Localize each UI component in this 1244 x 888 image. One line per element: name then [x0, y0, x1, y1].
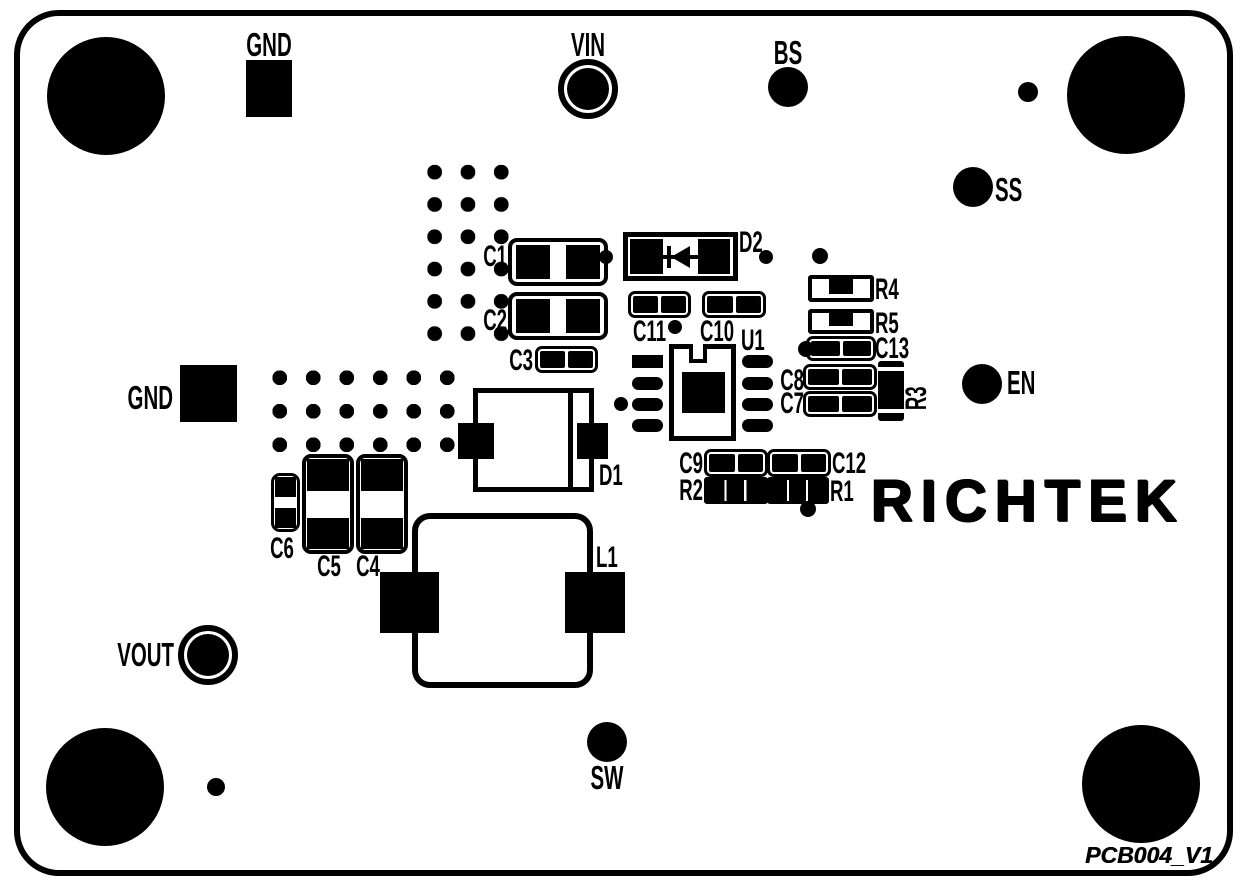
via-dot: [812, 248, 828, 264]
component-r4: [808, 275, 874, 302]
vout-pad-center: [187, 634, 229, 676]
r1-label: R1: [830, 477, 854, 507]
component-c12: [767, 449, 831, 477]
u1-label: U1: [741, 326, 765, 356]
pcb-layout-diagram: GND VIN BS SS EN GND VOUT SW C1 C2 C3 D2…: [0, 0, 1244, 888]
u1-pad-r4: [742, 419, 773, 432]
pcb-version-label: PCB004_V1: [1085, 844, 1213, 867]
component-r2: [704, 477, 768, 504]
l1-label: L1: [596, 543, 618, 573]
vout-label: VOUT: [117, 638, 173, 671]
r2-label: R2: [647, 476, 703, 506]
component-c9: [704, 449, 768, 477]
d1-pad-right: [577, 423, 608, 459]
en-label: EN: [1007, 366, 1035, 399]
sw-label: SW: [579, 761, 635, 794]
via-grid-left: [263, 361, 464, 462]
u1-pad-l1: [632, 355, 663, 368]
gnd-left-label: GND: [117, 381, 173, 414]
c10-label: C10: [700, 317, 734, 347]
c7-label: C7: [748, 389, 804, 419]
via-dot: [800, 501, 816, 517]
component-c7: [803, 391, 877, 417]
component-r5: [808, 309, 874, 334]
c3-label: C3: [477, 346, 533, 376]
vin-label: VIN: [560, 28, 616, 61]
via-dot: [599, 250, 613, 264]
u1-pin1-notch: [689, 344, 707, 363]
ss-label: SS: [995, 173, 1022, 206]
via-dot: [614, 397, 628, 411]
l1-pad-right: [565, 572, 625, 633]
r3-label: R3: [902, 388, 932, 410]
l1-pad-left: [380, 572, 439, 633]
via-dot: [1018, 82, 1038, 102]
c1-label: C1: [451, 242, 507, 272]
en-pad: [962, 364, 1002, 404]
d2-pad-right: [698, 239, 730, 274]
vout-pad: [178, 625, 238, 685]
ss-pad: [953, 167, 993, 207]
component-c2: [508, 292, 608, 340]
component-c1: [508, 238, 608, 286]
component-c5: [302, 454, 354, 554]
via-dot: [759, 250, 773, 264]
r4-label: R4: [875, 275, 899, 305]
component-c8: [803, 364, 877, 390]
vin-pad: [558, 59, 618, 119]
component-u1-body: [669, 344, 736, 441]
component-c4: [356, 454, 408, 554]
sw-pad: [587, 722, 627, 762]
mounting-hole-bottom-right: [1082, 725, 1200, 843]
d1-pad-left: [458, 423, 494, 459]
mounting-hole-top-left: [47, 37, 165, 155]
d2-pad-left: [630, 239, 663, 274]
component-r1: [767, 477, 829, 504]
d1-inner-line: [568, 393, 573, 487]
bs-pad: [768, 67, 808, 107]
bs-label: BS: [760, 36, 816, 69]
gnd-top-label: GND: [241, 28, 297, 61]
component-c10: [702, 291, 766, 318]
u1-die-pad: [682, 372, 725, 413]
via-dot: [668, 320, 682, 334]
u1-pad-l3: [632, 398, 663, 411]
richtek-logo: RICHTEK: [871, 473, 1185, 531]
component-d2: [623, 232, 738, 281]
via-dot: [207, 778, 225, 796]
u1-pad-l4: [632, 419, 663, 432]
component-c11: [628, 291, 691, 318]
via-dot: [798, 341, 814, 357]
d2-symbol-triangle: [671, 246, 690, 268]
c13-label: C13: [875, 334, 909, 364]
component-c6: [271, 473, 300, 532]
c11-label: C11: [633, 317, 666, 347]
vin-pad-center: [567, 68, 609, 110]
gnd-top-pad: [246, 60, 292, 117]
c2-label: C2: [451, 306, 507, 336]
mounting-hole-bottom-left: [46, 728, 164, 846]
gnd-left-pad: [180, 365, 237, 422]
component-c3: [535, 346, 598, 373]
d1-label: D1: [599, 461, 623, 491]
component-c13: [806, 336, 876, 361]
mounting-hole-top-right: [1067, 36, 1185, 154]
u1-pad-l2: [632, 377, 663, 390]
